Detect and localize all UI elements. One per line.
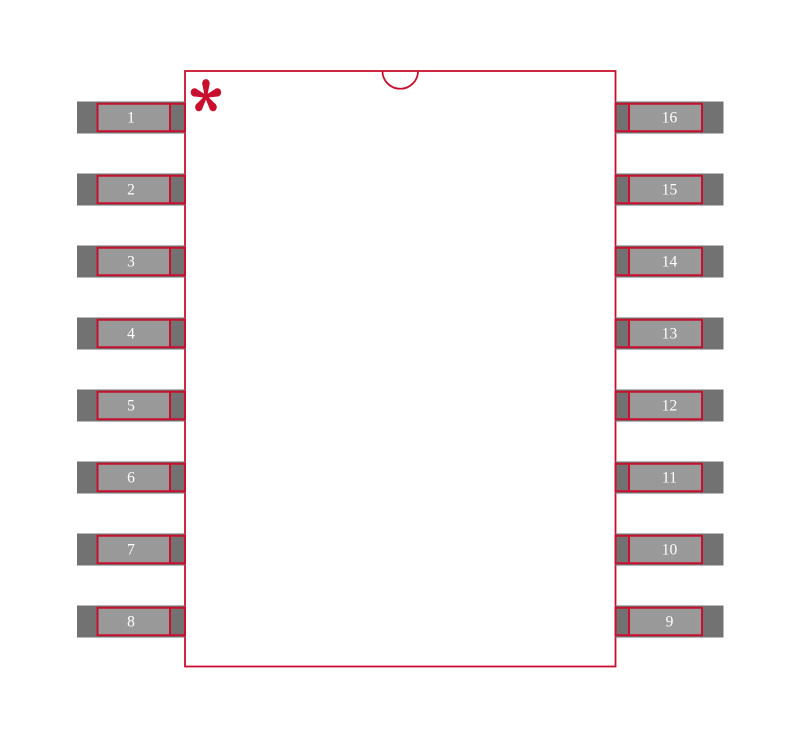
svg-text:12: 12: [662, 398, 678, 415]
svg-text:6: 6: [127, 470, 135, 487]
svg-text:13: 13: [662, 326, 678, 343]
svg-text:5: 5: [127, 398, 135, 415]
svg-text:8: 8: [127, 614, 135, 631]
svg-text:7: 7: [127, 542, 135, 559]
svg-text:15: 15: [662, 182, 678, 199]
svg-text:2: 2: [127, 182, 135, 199]
svg-text:11: 11: [662, 470, 677, 487]
svg-text:1: 1: [127, 110, 135, 127]
svg-text:10: 10: [662, 542, 678, 559]
svg-text:3: 3: [127, 254, 135, 271]
svg-text:4: 4: [127, 326, 135, 343]
svg-text:14: 14: [662, 254, 678, 271]
svg-text:9: 9: [666, 614, 674, 631]
svg-text:16: 16: [662, 110, 678, 127]
